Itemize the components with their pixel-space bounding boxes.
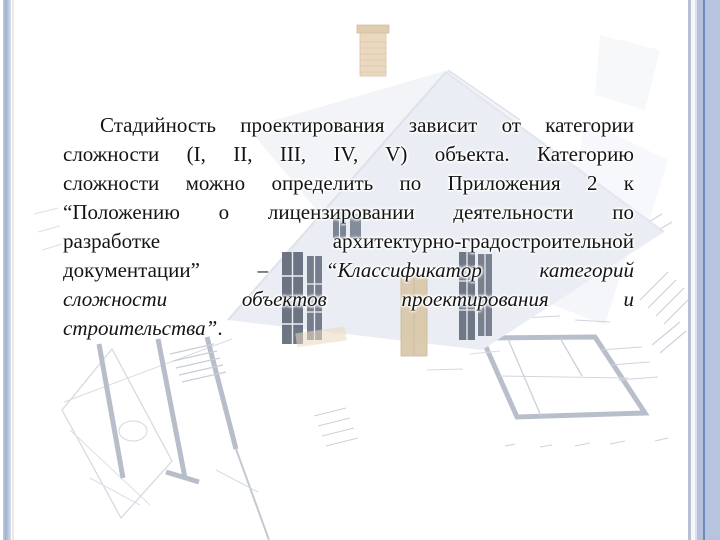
paragraph-line: документации” – “Классификатор категорий <box>63 256 634 285</box>
paragraph-line: разработке архитектурно-градостроительно… <box>63 227 634 256</box>
italic-text-segment: сложности объектов проектирования и <box>63 287 634 311</box>
left-border-stripe <box>3 0 11 540</box>
italic-text-segment: строительства” <box>63 316 217 340</box>
text-segment: разработке архитектурно-градостроительно… <box>63 229 634 253</box>
floor-plan-sketch-left <box>62 337 358 540</box>
right-border-outer-band <box>705 0 720 540</box>
paragraph-line: “Положению о лицензировании деятельности… <box>63 198 634 227</box>
text-segment: сложности можно определить по Приложения… <box>63 171 634 195</box>
text-segment: “Положению о лицензировании деятельности… <box>63 200 634 224</box>
slide-canvas: Стадийность проектирования зависит от ка… <box>0 0 720 540</box>
paragraph-line: строительства”. <box>63 314 634 343</box>
paragraph-line: сложности можно определить по Приложения… <box>63 169 634 198</box>
text-segment: Стадийность проектирования зависит от ка… <box>100 113 634 137</box>
paragraph-line: Стадийность проектирования зависит от ка… <box>63 111 634 140</box>
dimension-marks-left <box>34 208 62 250</box>
chimney <box>357 25 389 76</box>
text-segment: документации” – <box>63 258 326 282</box>
paragraph-line: сложности объектов проектирования и <box>63 285 634 314</box>
text-segment: сложности (I, II, III, IV, V) объекта. К… <box>63 142 634 166</box>
paragraph-line: сложности (I, II, III, IV, V) объекта. К… <box>63 140 634 169</box>
left-accent-line <box>12 0 14 540</box>
paragraph-text: Стадийность проектирования зависит от ка… <box>63 111 634 343</box>
text-segment: . <box>217 316 222 340</box>
italic-text-segment: “Классификатор категорий <box>326 258 634 282</box>
